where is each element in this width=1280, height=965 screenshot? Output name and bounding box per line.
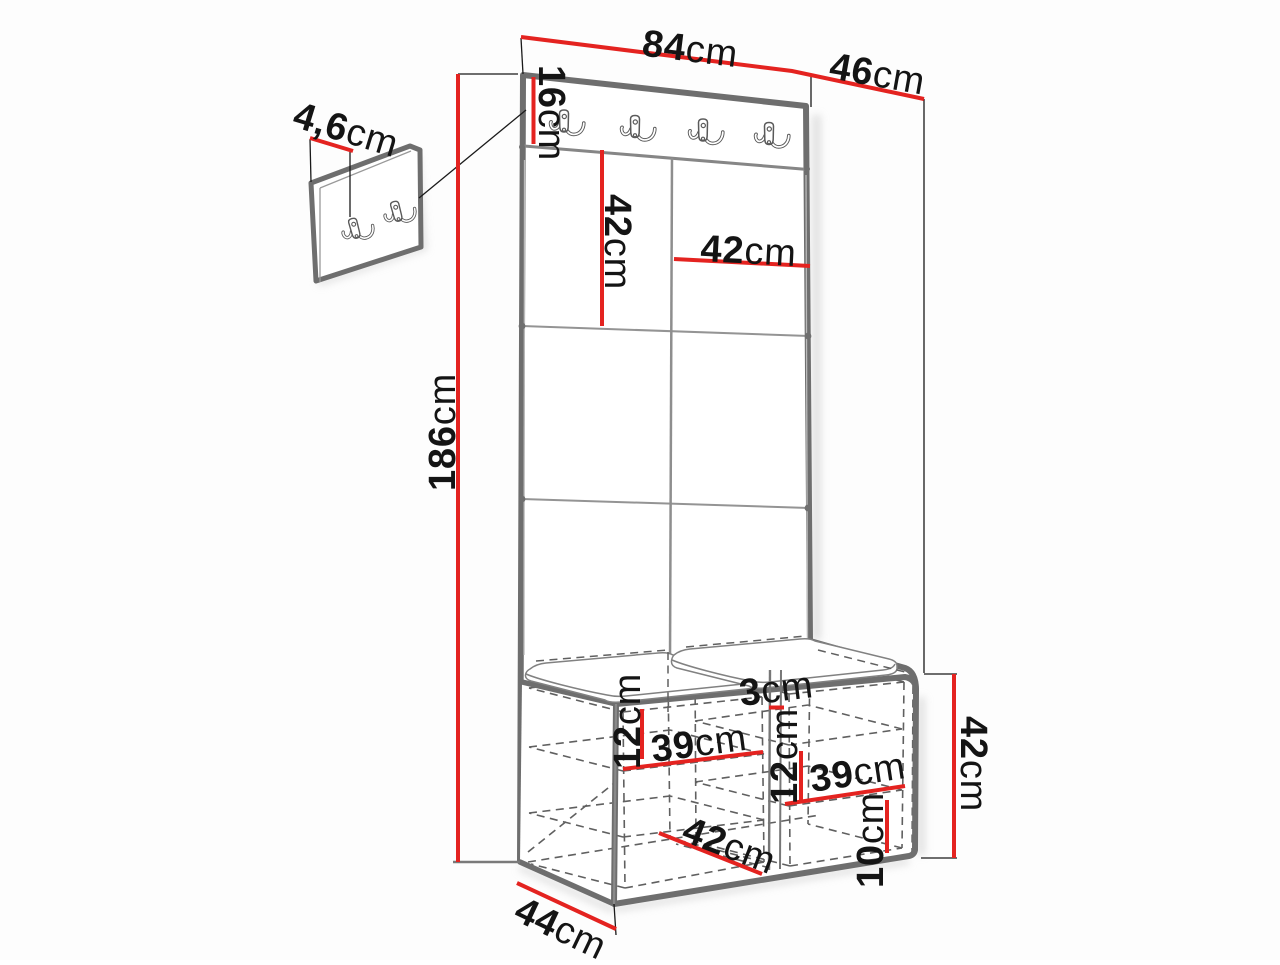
svg-text:42cm: 42cm — [700, 228, 798, 275]
svg-text:16cm: 16cm — [530, 65, 572, 161]
svg-text:186cm: 186cm — [422, 373, 464, 491]
svg-text:42cm: 42cm — [952, 716, 994, 812]
svg-text:42cm: 42cm — [596, 194, 638, 290]
svg-text:3cm: 3cm — [737, 664, 816, 715]
svg-text:10cm: 10cm — [850, 792, 892, 888]
svg-text:12cm: 12cm — [764, 708, 806, 804]
svg-text:12cm: 12cm — [607, 673, 649, 769]
